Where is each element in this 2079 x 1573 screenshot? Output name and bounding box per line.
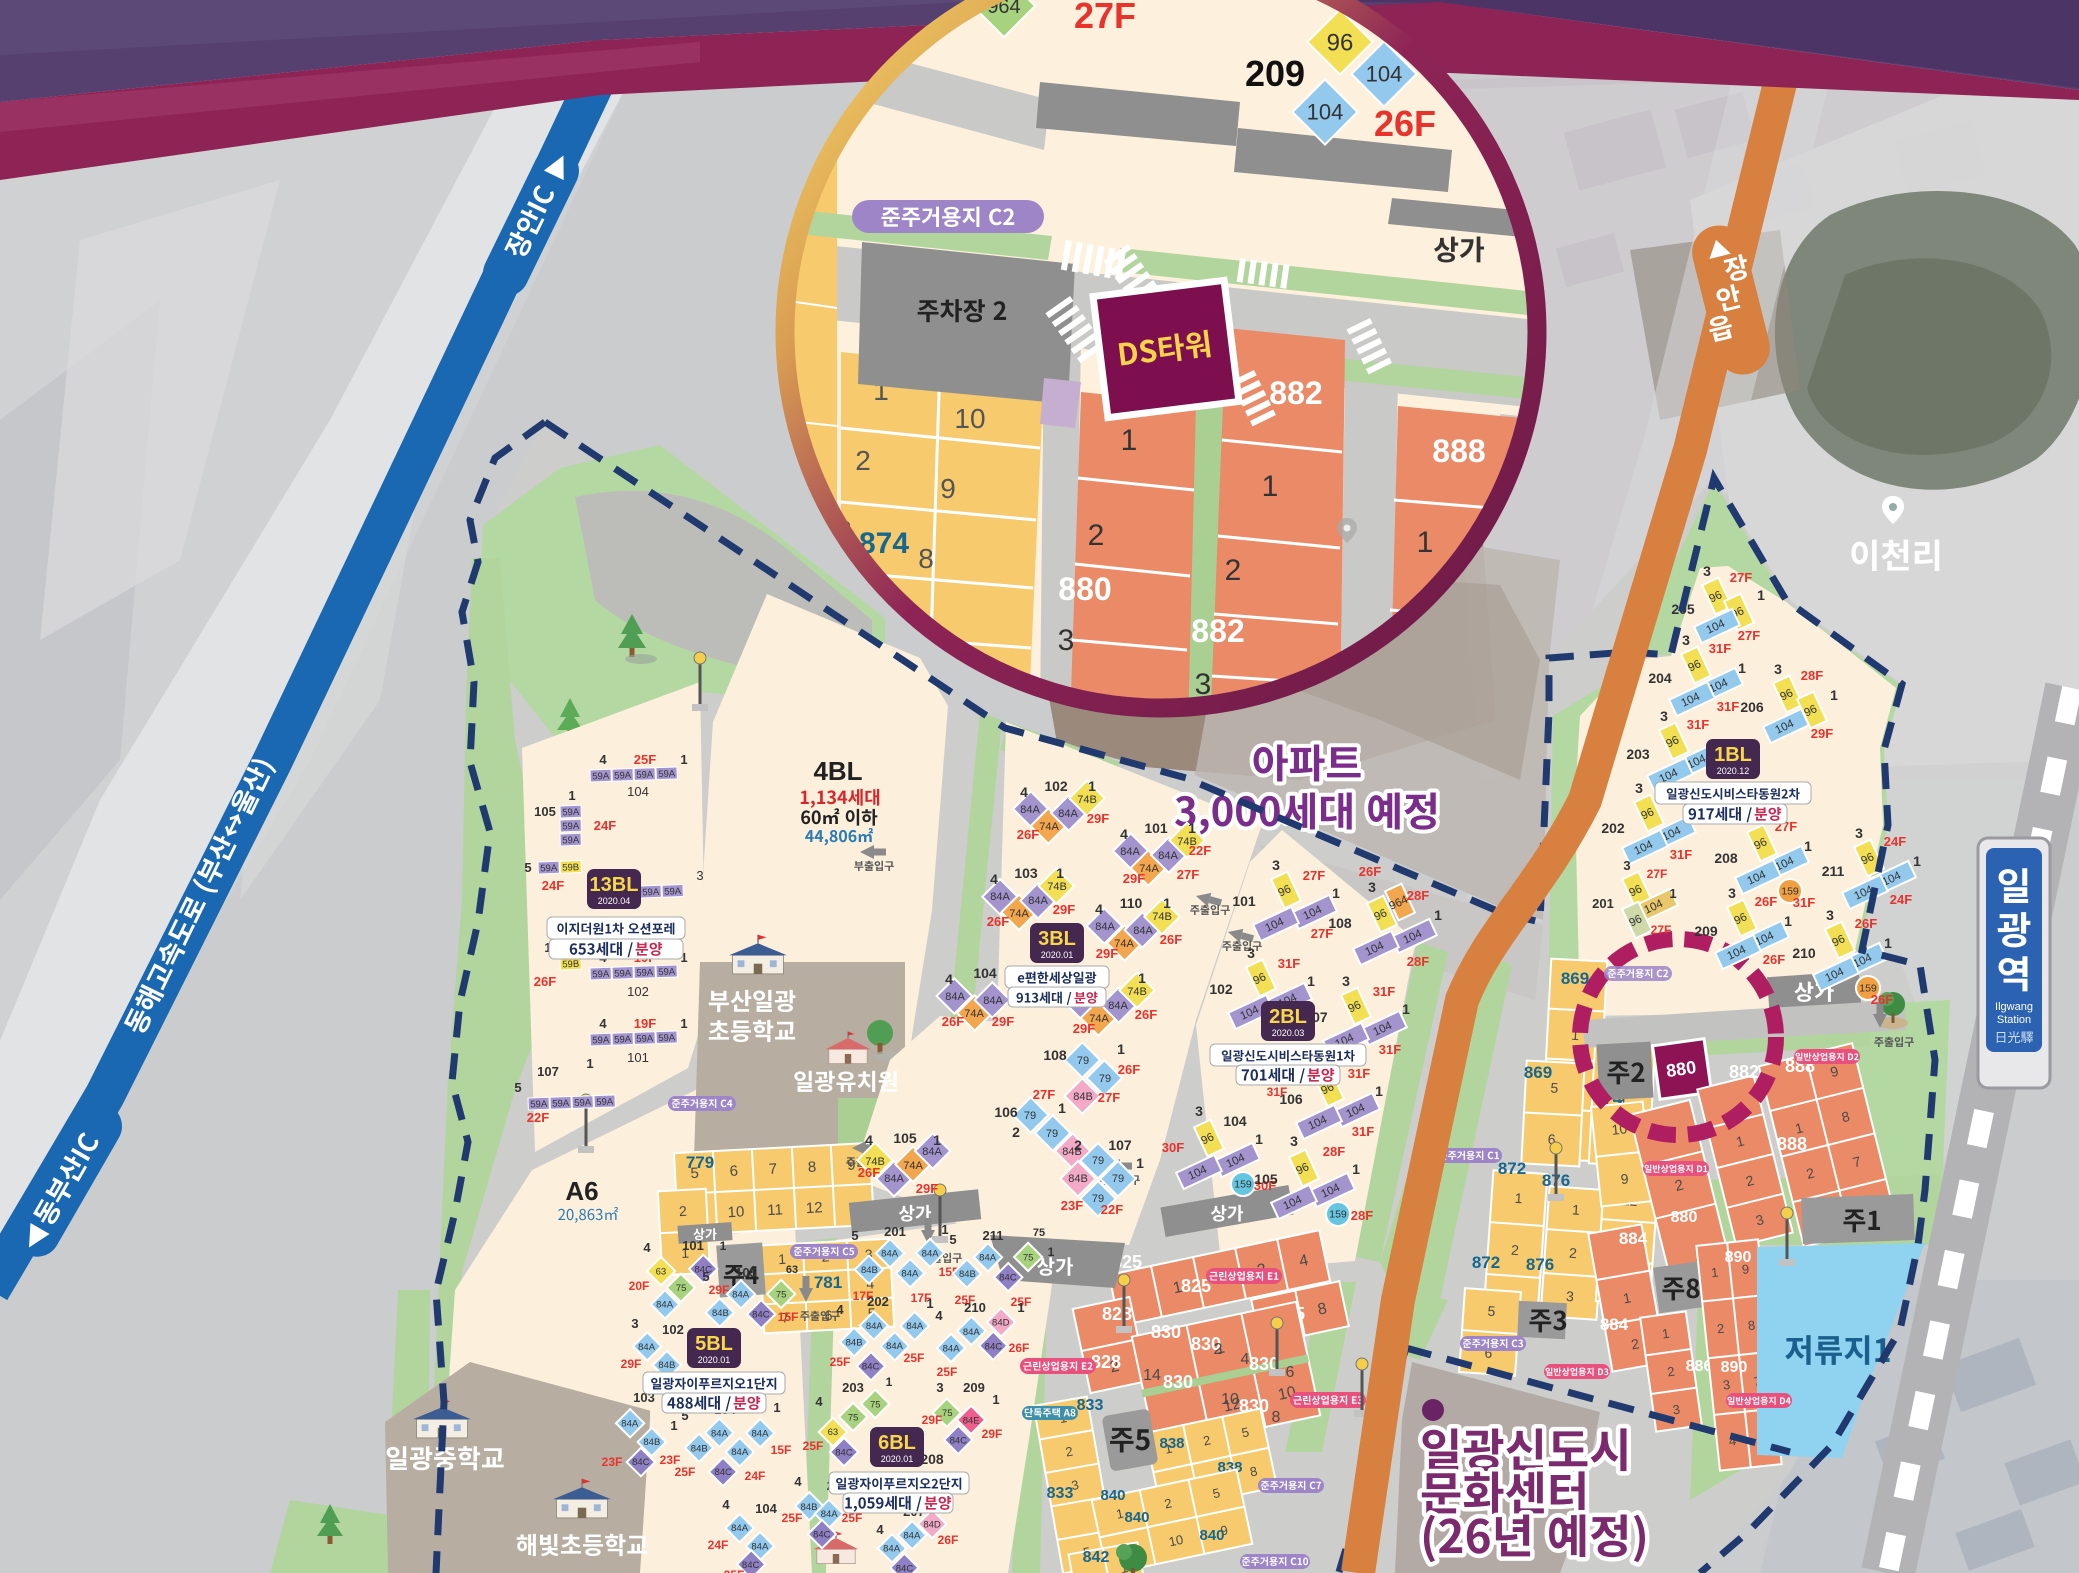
svg-text:26F: 26F <box>1359 864 1381 879</box>
svg-text:22F: 22F <box>1189 843 1211 858</box>
svg-text:26F: 26F <box>1009 1341 1030 1355</box>
svg-text:84A: 84A <box>884 1173 904 1185</box>
svg-text:59A: 59A <box>642 887 660 899</box>
svg-text:84B: 84B <box>643 1437 660 1448</box>
svg-text:4: 4 <box>876 1522 884 1537</box>
svg-text:59A: 59A <box>664 886 682 898</box>
svg-text:104: 104 <box>1366 62 1403 87</box>
svg-text:830: 830 <box>1163 1372 1193 1392</box>
svg-text:3: 3 <box>1623 858 1630 873</box>
svg-text:104: 104 <box>1223 1113 1247 1129</box>
svg-text:84A: 84A <box>983 995 1003 1007</box>
svg-text:1: 1 <box>1402 1001 1410 1017</box>
svg-text:28F: 28F <box>1407 888 1429 903</box>
svg-text:23F: 23F <box>602 1455 623 1469</box>
svg-text:84C: 84C <box>835 1447 853 1458</box>
svg-text:74A: 74A <box>1039 821 1059 833</box>
svg-text:1: 1 <box>1884 935 1892 951</box>
svg-text:1: 1 <box>1088 778 1096 794</box>
svg-text:5: 5 <box>851 1228 858 1243</box>
svg-text:84A: 84A <box>731 1447 749 1458</box>
svg-text:31F: 31F <box>1709 641 1731 656</box>
svg-text:26F: 26F <box>1118 1062 1140 1077</box>
svg-text:84B: 84B <box>801 1502 818 1513</box>
svg-text:203: 203 <box>1626 746 1650 762</box>
svg-text:4: 4 <box>990 871 998 887</box>
svg-text:1: 1 <box>1307 973 1315 989</box>
svg-text:1: 1 <box>1352 1161 1360 1177</box>
svg-text:10: 10 <box>954 403 985 434</box>
svg-text:84C: 84C <box>813 1529 831 1540</box>
svg-text:1: 1 <box>1913 853 1921 869</box>
svg-text:102: 102 <box>1209 981 1233 997</box>
svg-text:2020.12: 2020.12 <box>1717 766 1750 776</box>
svg-text:890: 890 <box>1721 1359 1748 1376</box>
svg-text:63: 63 <box>828 1427 839 1438</box>
svg-text:75: 75 <box>870 1400 881 1411</box>
svg-text:31F: 31F <box>1267 1085 1288 1099</box>
svg-text:29F: 29F <box>1123 871 1145 886</box>
svg-text:22F: 22F <box>1101 1202 1123 1217</box>
svg-text:25F: 25F <box>937 1365 958 1379</box>
svg-text:1: 1 <box>1138 970 1146 986</box>
svg-text:11: 11 <box>767 1201 783 1219</box>
svg-text:884: 884 <box>1600 1315 1629 1334</box>
svg-text:2: 2 <box>1214 1341 1223 1358</box>
svg-text:59B: 59B <box>562 959 579 971</box>
svg-text:26F: 26F <box>1755 894 1777 909</box>
svg-text:6: 6 <box>729 1163 738 1180</box>
svg-text:209: 209 <box>963 1380 985 1395</box>
svg-text:4: 4 <box>1020 784 1028 800</box>
svg-text:79: 79 <box>1024 1110 1036 1122</box>
svg-text:779: 779 <box>686 1153 714 1172</box>
svg-text:79: 79 <box>1046 1128 1058 1140</box>
svg-text:876: 876 <box>1526 1255 1554 1274</box>
svg-text:833: 833 <box>1077 1397 1104 1414</box>
svg-text:84A: 84A <box>751 1541 769 1552</box>
svg-text:Station: Station <box>1997 1014 2031 1026</box>
svg-text:10: 10 <box>727 1203 745 1221</box>
svg-text:4: 4 <box>1120 826 1128 842</box>
svg-text:1: 1 <box>886 1375 893 1389</box>
svg-text:59A: 59A <box>596 1097 614 1109</box>
svg-text:27F: 27F <box>1738 628 1760 643</box>
svg-text:84A: 84A <box>1058 808 1078 820</box>
svg-text:25F: 25F <box>724 1568 745 1573</box>
svg-text:209: 209 <box>1694 923 1718 939</box>
svg-text:84A: 84A <box>901 1269 919 1280</box>
svg-text:5: 5 <box>524 860 531 875</box>
svg-text:830: 830 <box>1151 1322 1181 1342</box>
svg-text:75: 75 <box>676 1283 687 1294</box>
svg-text:838: 838 <box>1159 1435 1184 1452</box>
svg-text:2: 2 <box>679 1203 688 1219</box>
svg-text:103: 103 <box>1014 865 1038 881</box>
svg-text:102: 102 <box>662 1322 684 1337</box>
svg-text:84A: 84A <box>990 891 1010 903</box>
svg-text:4: 4 <box>722 1497 730 1512</box>
svg-text:10: 10 <box>1167 1532 1184 1550</box>
svg-text:28F: 28F <box>1407 954 1429 969</box>
svg-text:84C: 84C <box>999 1273 1017 1284</box>
svg-text:107: 107 <box>537 1064 559 1079</box>
svg-text:107: 107 <box>1108 1137 1132 1153</box>
svg-text:31F: 31F <box>1793 895 1815 910</box>
svg-text:84A: 84A <box>1158 850 1178 862</box>
svg-text:1: 1 <box>680 1016 687 1031</box>
svg-text:74A: 74A <box>1009 908 1029 920</box>
svg-text:84B: 84B <box>658 1360 675 1371</box>
svg-text:24F: 24F <box>708 1538 729 1552</box>
svg-text:3: 3 <box>1195 1103 1203 1119</box>
svg-text:2: 2 <box>1225 554 1242 587</box>
svg-text:59A: 59A <box>562 807 580 819</box>
svg-text:25F: 25F <box>904 1351 925 1365</box>
svg-text:29F: 29F <box>621 1357 642 1371</box>
svg-text:26F: 26F <box>1374 103 1436 144</box>
svg-text:1: 1 <box>1830 687 1838 703</box>
svg-text:15F: 15F <box>778 1310 799 1324</box>
svg-text:3: 3 <box>1290 1133 1298 1149</box>
svg-text:1: 1 <box>1757 587 1765 603</box>
svg-text:27F: 27F <box>1074 0 1136 36</box>
svg-text:84B: 84B <box>846 1337 863 1348</box>
svg-text:8: 8 <box>808 1159 817 1176</box>
svg-text:202: 202 <box>867 1294 889 1309</box>
svg-text:1: 1 <box>1017 1300 1024 1315</box>
svg-text:26F: 26F <box>1135 1007 1157 1022</box>
svg-text:1: 1 <box>1434 907 1442 923</box>
svg-text:84B: 84B <box>712 1308 729 1319</box>
svg-text:102: 102 <box>627 984 649 999</box>
svg-text:84A: 84A <box>1120 846 1140 858</box>
svg-text:4: 4 <box>945 971 953 987</box>
svg-text:3: 3 <box>631 1316 638 1331</box>
svg-text:31F: 31F <box>1373 984 1395 999</box>
svg-text:4: 4 <box>815 1394 823 1409</box>
svg-text:1: 1 <box>1804 838 1812 854</box>
svg-text:74A: 74A <box>964 1008 984 1020</box>
svg-text:105: 105 <box>735 1265 757 1280</box>
svg-text:1: 1 <box>1710 1265 1719 1281</box>
svg-text:1: 1 <box>1117 1041 1125 1057</box>
svg-text:31F: 31F <box>1717 699 1739 714</box>
svg-text:84B: 84B <box>1073 1091 1093 1103</box>
svg-text:7: 7 <box>768 1161 777 1178</box>
svg-text:19F: 19F <box>634 1016 656 1031</box>
svg-text:74B: 74B <box>1077 794 1097 806</box>
svg-text:5: 5 <box>1487 1303 1496 1320</box>
svg-text:79: 79 <box>1077 1055 1089 1067</box>
svg-text:29F: 29F <box>916 1181 938 1196</box>
svg-text:4: 4 <box>1095 901 1103 917</box>
svg-text:1: 1 <box>1058 1100 1066 1116</box>
svg-text:108: 108 <box>1043 1047 1067 1063</box>
svg-text:59A: 59A <box>530 1099 548 1111</box>
svg-text:3: 3 <box>1247 945 1255 961</box>
svg-text:5: 5 <box>949 1232 956 1247</box>
svg-text:84D: 84D <box>923 1520 941 1531</box>
svg-text:A6: A6 <box>565 1176 598 1206</box>
svg-text:25F: 25F <box>675 1465 696 1479</box>
svg-text:59A: 59A <box>614 1034 632 1046</box>
svg-text:8: 8 <box>1272 1409 1281 1426</box>
svg-text:84A: 84A <box>979 1252 997 1263</box>
svg-text:201: 201 <box>884 1224 906 1239</box>
svg-text:27F: 27F <box>1033 1087 1055 1102</box>
svg-text:2: 2 <box>1716 1321 1725 1337</box>
svg-text:1: 1 <box>941 1222 948 1237</box>
svg-text:3: 3 <box>1272 857 1280 873</box>
svg-text:3BL: 3BL <box>1038 928 1076 950</box>
svg-text:781: 781 <box>814 1273 842 1292</box>
svg-text:8: 8 <box>1747 1317 1756 1333</box>
svg-text:23F: 23F <box>1061 1198 1083 1213</box>
svg-text:75: 75 <box>776 1289 787 1300</box>
svg-text:27F: 27F <box>1651 923 1672 937</box>
svg-text:882: 882 <box>1269 375 1322 411</box>
svg-text:84A: 84A <box>906 1321 924 1332</box>
svg-text:4: 4 <box>643 1240 651 1255</box>
svg-text:84A: 84A <box>903 1531 921 1542</box>
svg-text:25F: 25F <box>634 752 656 767</box>
svg-text:2: 2 <box>1511 1242 1520 1259</box>
svg-text:84A: 84A <box>711 1429 729 1440</box>
svg-text:211: 211 <box>983 1228 1004 1243</box>
svg-text:104: 104 <box>973 965 997 981</box>
svg-text:2020.03: 2020.03 <box>1272 1028 1305 1038</box>
svg-text:4: 4 <box>599 752 607 767</box>
svg-text:28F: 28F <box>1351 1208 1373 1223</box>
svg-text:201: 201 <box>1592 896 1614 911</box>
svg-text:26F: 26F <box>1160 932 1182 947</box>
svg-text:59A: 59A <box>592 1035 610 1047</box>
svg-text:29F: 29F <box>922 1413 943 1427</box>
svg-text:31F: 31F <box>1278 956 1300 971</box>
svg-text:29F: 29F <box>1053 902 1075 917</box>
svg-text:28F: 28F <box>1801 668 1823 683</box>
svg-text:3: 3 <box>1368 879 1376 895</box>
svg-text:84A: 84A <box>1028 895 1048 907</box>
svg-text:5BL: 5BL <box>695 1333 733 1355</box>
svg-text:29F: 29F <box>992 1014 1014 1029</box>
svg-text:4: 4 <box>935 1308 943 1323</box>
svg-text:208: 208 <box>1714 850 1738 866</box>
svg-text:24F: 24F <box>594 818 616 833</box>
svg-text:84A: 84A <box>1020 804 1040 816</box>
svg-text:84A: 84A <box>621 1419 639 1430</box>
svg-text:84B: 84B <box>959 1269 976 1280</box>
svg-text:105: 105 <box>1254 1171 1278 1187</box>
svg-text:108: 108 <box>1328 915 1352 931</box>
svg-text:1: 1 <box>1262 470 1279 503</box>
svg-text:59A: 59A <box>592 771 610 783</box>
svg-text:84A: 84A <box>866 1321 884 1332</box>
svg-text:2: 2 <box>1012 1124 1020 1140</box>
svg-text:22F: 22F <box>527 1110 549 1125</box>
svg-text:84A: 84A <box>922 1248 940 1259</box>
svg-text:880: 880 <box>1671 1209 1698 1226</box>
svg-text:75: 75 <box>1023 1252 1034 1263</box>
svg-text:825: 825 <box>1181 1276 1211 1296</box>
svg-text:59A: 59A <box>562 821 580 833</box>
svg-text:84A: 84A <box>881 1248 899 1259</box>
svg-text:105: 105 <box>534 804 556 819</box>
svg-text:59A: 59A <box>658 1033 676 1045</box>
svg-text:84C: 84C <box>862 1361 880 1372</box>
svg-text:26F: 26F <box>1763 952 1785 967</box>
svg-text:3: 3 <box>1342 973 1350 989</box>
svg-text:6: 6 <box>1286 1364 1295 1381</box>
svg-text:26F: 26F <box>534 974 556 989</box>
svg-text:84A: 84A <box>1095 921 1115 933</box>
svg-text:27F: 27F <box>1303 868 1325 883</box>
svg-text:96: 96 <box>1327 29 1354 56</box>
svg-text:3: 3 <box>696 868 703 883</box>
svg-text:202: 202 <box>1601 820 1625 836</box>
svg-text:840: 840 <box>1199 1527 1224 1544</box>
svg-text:29F: 29F <box>1073 1021 1095 1036</box>
svg-text:888: 888 <box>1777 1134 1807 1154</box>
svg-text:63: 63 <box>786 1264 798 1276</box>
svg-text:59A: 59A <box>636 967 654 979</box>
svg-text:15F: 15F <box>771 1443 792 1457</box>
svg-text:31F: 31F <box>1348 1066 1370 1081</box>
svg-text:882: 882 <box>1729 1062 1759 1082</box>
svg-text:1: 1 <box>586 1056 593 1071</box>
svg-text:3: 3 <box>1635 780 1643 796</box>
svg-text:4BL: 4BL <box>813 756 862 786</box>
svg-text:27F: 27F <box>1730 570 1752 585</box>
svg-text:1: 1 <box>1136 1155 1144 1171</box>
svg-text:3: 3 <box>1566 1288 1575 1305</box>
svg-text:105: 105 <box>893 1130 917 1146</box>
svg-text:29F: 29F <box>982 1427 1003 1441</box>
svg-text:2BL: 2BL <box>1269 1006 1307 1028</box>
svg-text:2: 2 <box>1074 1137 1082 1153</box>
svg-text:3: 3 <box>1660 708 1668 724</box>
svg-text:1BL: 1BL <box>1714 744 1752 766</box>
svg-text:59A: 59A <box>658 769 676 781</box>
svg-text:84A: 84A <box>731 1523 749 1534</box>
svg-text:84C: 84C <box>950 1436 968 1447</box>
svg-text:3: 3 <box>1774 661 1782 677</box>
svg-text:828: 828 <box>1102 1304 1132 1324</box>
svg-text:59A: 59A <box>636 1033 654 1045</box>
svg-text:8: 8 <box>918 543 934 574</box>
svg-text:27F: 27F <box>1647 867 1668 881</box>
svg-text:104: 104 <box>755 1501 777 1516</box>
svg-text:206: 206 <box>1740 699 1764 715</box>
svg-text:79: 79 <box>1099 1073 1111 1085</box>
svg-text:1: 1 <box>1332 885 1340 901</box>
svg-text:833: 833 <box>1047 1485 1074 1502</box>
svg-text:12: 12 <box>805 1199 823 1217</box>
svg-text:1: 1 <box>720 1239 727 1253</box>
svg-text:159: 159 <box>1329 1209 1347 1221</box>
svg-text:1: 1 <box>1163 895 1171 911</box>
svg-text:880: 880 <box>1058 571 1111 607</box>
svg-text:4: 4 <box>794 1474 802 1489</box>
svg-text:27F: 27F <box>1098 1090 1120 1105</box>
svg-text:101: 101 <box>627 1050 649 1065</box>
svg-text:84A: 84A <box>1133 925 1153 937</box>
svg-text:84A: 84A <box>732 1289 750 1300</box>
svg-text:84A: 84A <box>821 1509 839 1520</box>
svg-text:869: 869 <box>1524 1063 1552 1082</box>
svg-text:102: 102 <box>1044 778 1068 794</box>
svg-text:1: 1 <box>933 1132 941 1148</box>
svg-text:3: 3 <box>1728 885 1736 901</box>
svg-text:84B: 84B <box>861 1265 878 1276</box>
svg-text:159: 159 <box>1234 1179 1252 1191</box>
svg-text:84B: 84B <box>691 1443 708 1454</box>
svg-text:59A: 59A <box>562 835 580 847</box>
svg-text:59A: 59A <box>614 968 632 980</box>
svg-text:59A: 59A <box>540 863 558 875</box>
svg-text:84C: 84C <box>632 1457 650 1468</box>
svg-text:74A: 74A <box>903 1160 923 1172</box>
svg-text:1: 1 <box>992 1392 999 1407</box>
svg-text:84C: 84C <box>985 1341 1003 1352</box>
svg-text:3: 3 <box>1703 563 1711 579</box>
svg-text:31F: 31F <box>1670 847 1692 862</box>
svg-text:31F: 31F <box>1352 1124 1374 1139</box>
svg-text:30F: 30F <box>1162 1140 1184 1155</box>
svg-text:1: 1 <box>1255 1131 1263 1147</box>
svg-text:84C: 84C <box>752 1310 770 1321</box>
svg-text:3: 3 <box>1058 624 1075 657</box>
svg-text:84A: 84A <box>886 1341 904 1352</box>
svg-text:74B: 74B <box>1152 911 1172 923</box>
svg-text:26F: 26F <box>987 914 1009 929</box>
svg-text:4: 4 <box>599 1016 607 1031</box>
svg-text:101: 101 <box>682 1238 704 1253</box>
svg-text:59A: 59A <box>592 969 610 981</box>
svg-text:211: 211 <box>1822 863 1845 879</box>
svg-text:1: 1 <box>1514 1190 1523 1207</box>
svg-text:9: 9 <box>940 473 956 504</box>
svg-text:59A: 59A <box>552 1098 570 1110</box>
svg-text:1: 1 <box>1417 526 1434 559</box>
svg-text:26F: 26F <box>942 1014 964 1029</box>
svg-text:5: 5 <box>514 1080 521 1095</box>
svg-text:24F: 24F <box>1884 834 1906 849</box>
svg-text:890: 890 <box>1725 1249 1752 1266</box>
svg-text:24F: 24F <box>1890 892 1912 907</box>
svg-text:84A: 84A <box>963 1327 981 1338</box>
svg-text:1: 1 <box>926 1296 933 1311</box>
svg-text:59A: 59A <box>614 770 632 782</box>
svg-text:84E: 84E <box>963 1415 980 1426</box>
svg-text:29F: 29F <box>1811 726 1833 741</box>
svg-text:59B: 59B <box>562 862 579 874</box>
svg-text:84A: 84A <box>945 991 965 1003</box>
svg-text:28F: 28F <box>1323 1144 1345 1159</box>
svg-text:1: 1 <box>1669 886 1676 901</box>
svg-text:2020.01: 2020.01 <box>1041 950 1074 960</box>
svg-text:872: 872 <box>1472 1253 1500 1272</box>
svg-text:84C: 84C <box>896 1564 914 1573</box>
svg-text:79: 79 <box>1092 1155 1104 1167</box>
svg-text:84A: 84A <box>1108 1000 1128 1012</box>
svg-text:884: 884 <box>1619 1229 1648 1248</box>
svg-text:6BL: 6BL <box>878 1432 916 1454</box>
svg-text:84A: 84A <box>752 1429 770 1440</box>
svg-text:1: 1 <box>773 1400 780 1415</box>
svg-text:59A: 59A <box>636 769 654 781</box>
